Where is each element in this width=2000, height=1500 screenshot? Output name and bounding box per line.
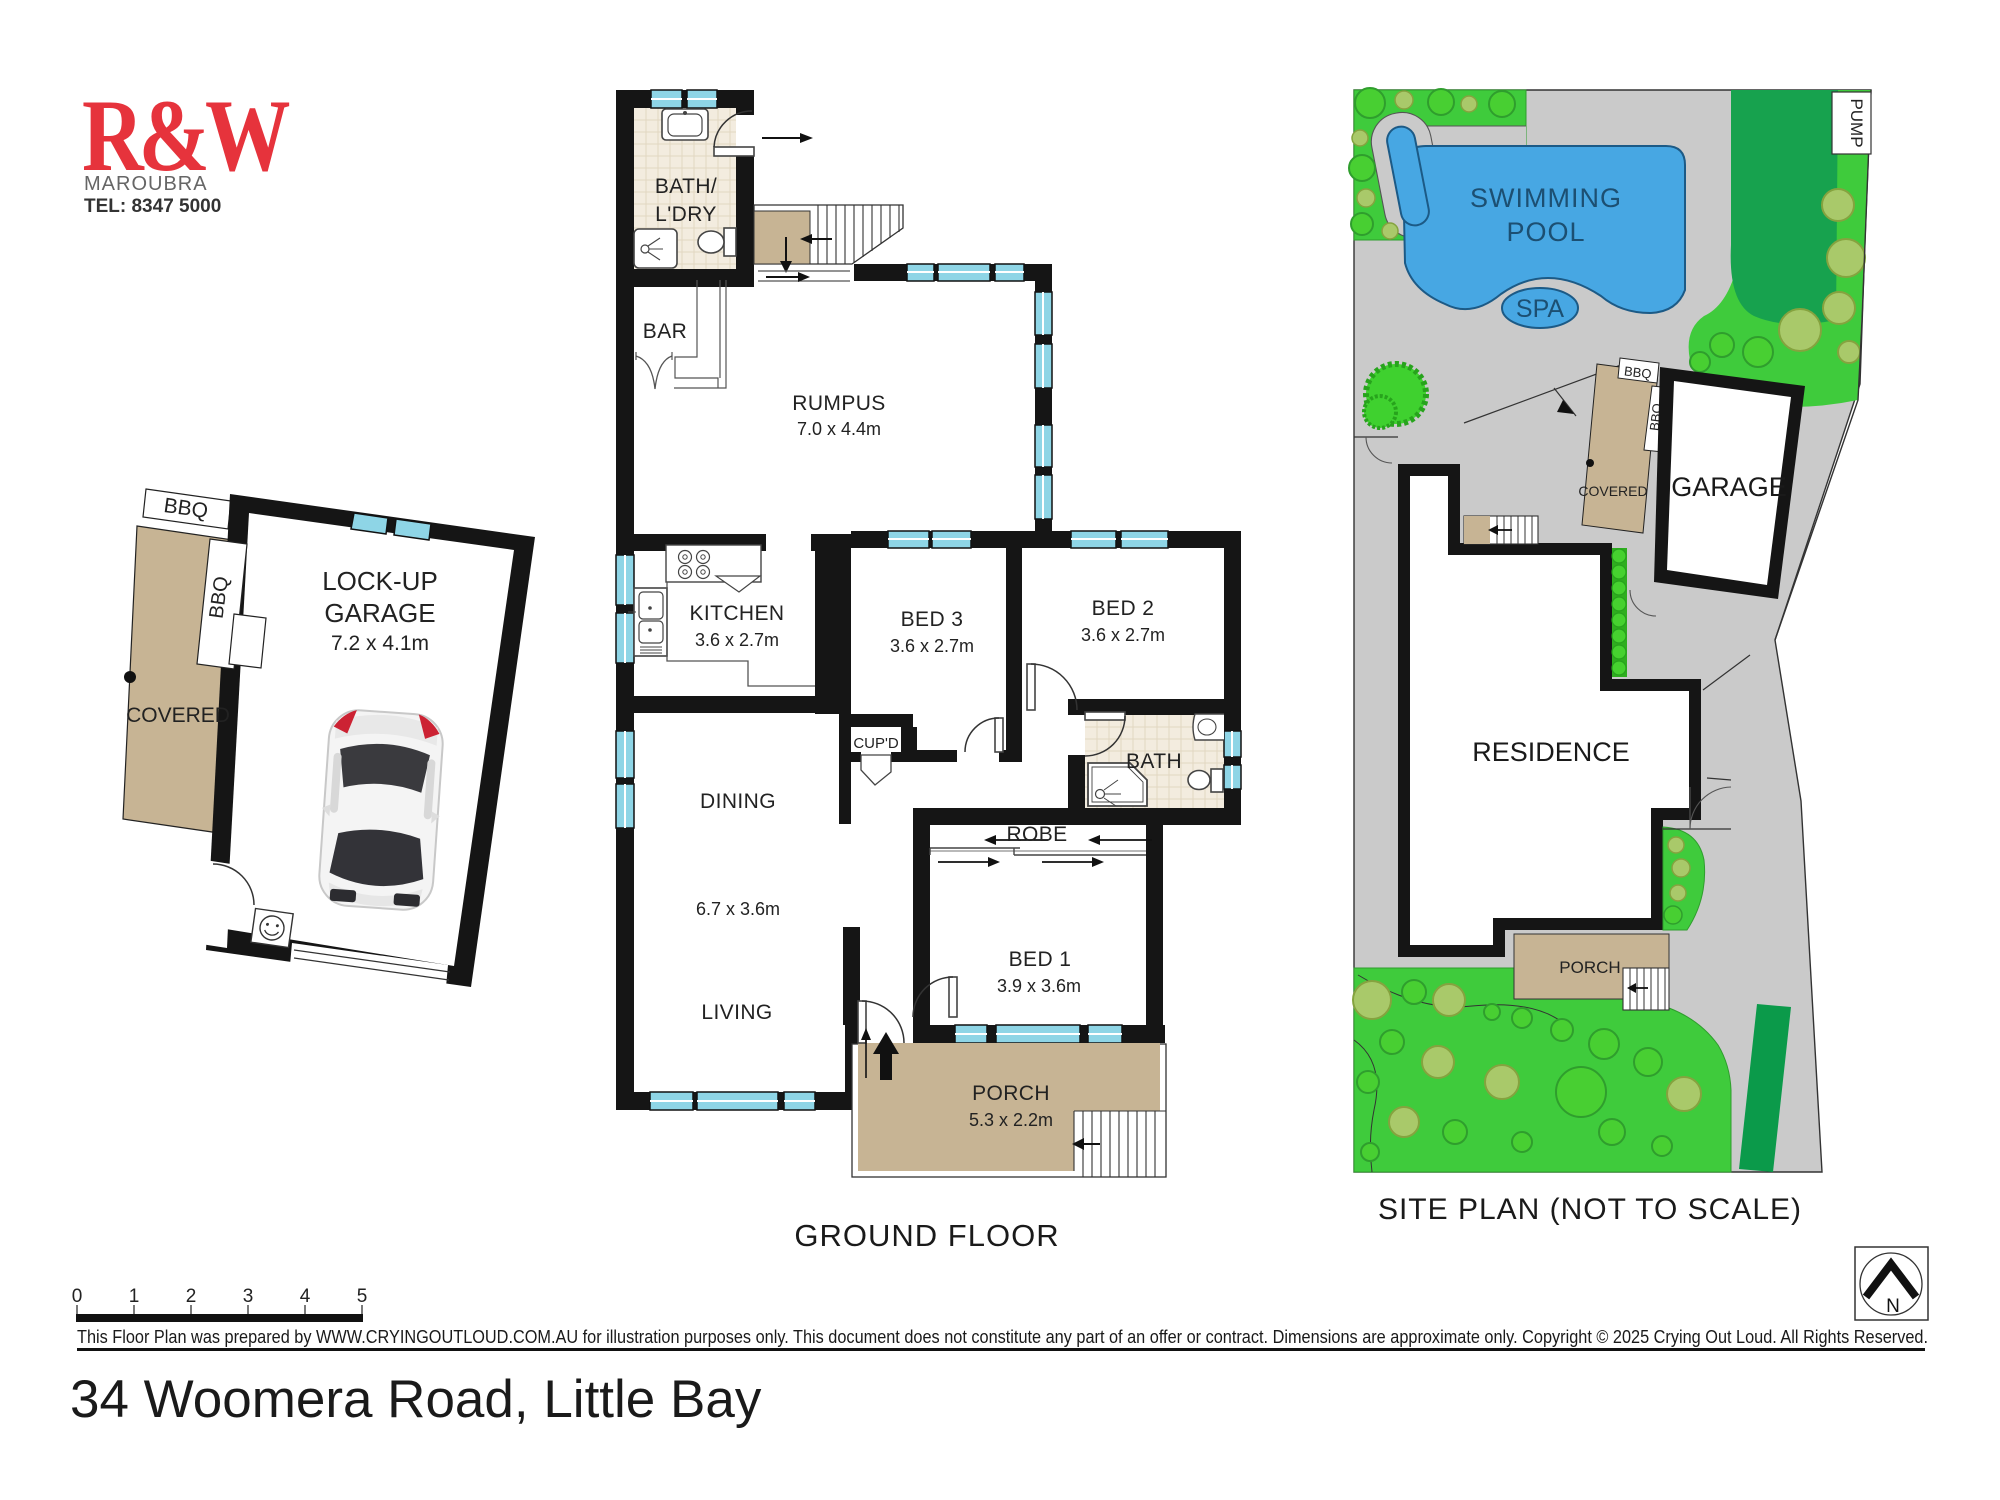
svg-text:TEL: 8347 5000: TEL: 8347 5000 bbox=[84, 196, 221, 217]
svg-text:COVERED: COVERED bbox=[1578, 483, 1647, 499]
svg-text:This Floor Plan was prepared b: This Floor Plan was prepared by WWW.CRYI… bbox=[77, 1327, 1928, 1347]
svg-text:CUP'D: CUP'D bbox=[853, 735, 899, 752]
svg-text:34 Woomera Road, Little Bay: 34 Woomera Road, Little Bay bbox=[70, 1370, 762, 1429]
svg-text:5.3 x 2.2m: 5.3 x 2.2m bbox=[969, 1110, 1053, 1130]
svg-text:ROBE: ROBE bbox=[1006, 823, 1067, 846]
svg-text:1: 1 bbox=[129, 1286, 140, 1307]
svg-text:SITE PLAN (NOT TO SCALE): SITE PLAN (NOT TO SCALE) bbox=[1378, 1193, 1802, 1226]
svg-text:3.9 x 3.6m: 3.9 x 3.6m bbox=[997, 976, 1081, 996]
svg-text:3: 3 bbox=[243, 1286, 254, 1307]
svg-text:PORCH: PORCH bbox=[1559, 958, 1620, 977]
svg-text:DINING: DINING bbox=[700, 790, 776, 813]
svg-text:POOL: POOL bbox=[1506, 217, 1585, 247]
svg-text:3.6 x 2.7m: 3.6 x 2.7m bbox=[1081, 625, 1165, 645]
svg-text:L'DRY: L'DRY bbox=[655, 203, 717, 226]
svg-text:7.0 x 4.4m: 7.0 x 4.4m bbox=[797, 419, 881, 439]
svg-text:LOCK-UP: LOCK-UP bbox=[322, 566, 438, 596]
svg-text:BED 1: BED 1 bbox=[1009, 948, 1072, 971]
svg-text:PUMP: PUMP bbox=[1847, 98, 1866, 147]
svg-text:COVERED: COVERED bbox=[126, 704, 230, 727]
svg-text:7.2 x 4.1m: 7.2 x 4.1m bbox=[331, 632, 429, 655]
svg-text:BED 2: BED 2 bbox=[1092, 597, 1155, 620]
svg-text:0: 0 bbox=[72, 1286, 83, 1307]
svg-text:KITCHEN: KITCHEN bbox=[690, 602, 785, 625]
svg-text:6.7 x 3.6m: 6.7 x 3.6m bbox=[696, 899, 780, 919]
svg-text:BAR: BAR bbox=[643, 320, 687, 343]
svg-text:2: 2 bbox=[186, 1286, 197, 1307]
svg-text:LIVING: LIVING bbox=[701, 1001, 772, 1024]
svg-text:SWIMMING: SWIMMING bbox=[1470, 183, 1622, 213]
svg-text:GARAGE: GARAGE bbox=[1671, 472, 1787, 502]
svg-text:MAROUBRA: MAROUBRA bbox=[84, 173, 208, 195]
svg-text:BATH/: BATH/ bbox=[655, 175, 717, 198]
svg-text:BED 3: BED 3 bbox=[901, 608, 964, 631]
svg-text:N: N bbox=[1886, 1296, 1900, 1317]
svg-text:BATH: BATH bbox=[1126, 750, 1182, 773]
svg-text:RUMPUS: RUMPUS bbox=[792, 392, 885, 415]
svg-text:3.6 x 2.7m: 3.6 x 2.7m bbox=[695, 630, 779, 650]
svg-text:5: 5 bbox=[357, 1286, 368, 1307]
svg-text:GARAGE: GARAGE bbox=[324, 598, 435, 628]
svg-text:4: 4 bbox=[300, 1286, 311, 1307]
svg-text:3.6 x 2.7m: 3.6 x 2.7m bbox=[890, 636, 974, 656]
svg-text:PORCH: PORCH bbox=[972, 1082, 1050, 1105]
svg-text:GROUND FLOOR: GROUND FLOOR bbox=[794, 1218, 1059, 1253]
svg-text:RESIDENCE: RESIDENCE bbox=[1472, 737, 1630, 767]
svg-text:SPA: SPA bbox=[1516, 295, 1564, 323]
